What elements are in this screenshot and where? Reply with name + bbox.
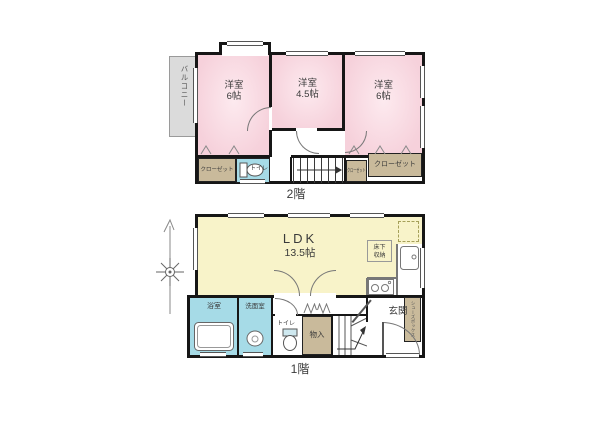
underfloor-storage: 床下収納 (367, 240, 392, 262)
closet-left: クローゼット (198, 158, 236, 182)
entrance-label: 玄関 (376, 306, 420, 317)
balcony: バルコニー (169, 56, 196, 137)
bay-opening (222, 52, 268, 56)
bathtub-icon (194, 322, 234, 351)
closet-label: クローゼット (369, 161, 421, 169)
bifold-door-mark (317, 303, 331, 314)
window (243, 352, 263, 357)
room-name: 洋室 (224, 80, 243, 91)
room-middle-label: 洋室 4.5帖 (272, 78, 343, 101)
window (240, 179, 265, 184)
closet-door-mark (200, 145, 212, 155)
entrance-door-leaf (382, 322, 384, 355)
compass-icon (150, 216, 190, 320)
window (420, 248, 425, 288)
underfloor-storage-label: 床下収納 (373, 245, 387, 261)
washbasin-icon (246, 330, 264, 347)
room-size: 6帖 (376, 91, 391, 102)
toilet-icon (281, 328, 299, 352)
bathroom-label: 浴室 (190, 303, 238, 311)
refrigerator-space (398, 221, 419, 242)
kitchen-sink-icon (400, 246, 420, 270)
window (286, 51, 328, 56)
ldk-size: 13.5帖 (250, 247, 350, 260)
room-right-label: 洋室 6帖 (345, 80, 422, 103)
storage-closet: 物入 (302, 316, 332, 355)
window (227, 41, 263, 46)
room-size: 6帖 (227, 91, 242, 102)
wall (331, 316, 333, 355)
wall (291, 155, 347, 158)
window (350, 213, 384, 218)
toilet-2f-label: トイレ (248, 166, 270, 173)
stairs-arrow (295, 165, 343, 175)
closet-label: クローゼット (199, 167, 235, 174)
window (288, 213, 330, 218)
window (228, 213, 264, 218)
closet-door-mark (400, 145, 412, 155)
window (193, 228, 198, 270)
closet-door-mark (374, 145, 386, 155)
ldk-label: LDK 13.5帖 (250, 231, 350, 259)
window (420, 106, 425, 148)
stairs-1f (333, 316, 367, 355)
closet-right: クローゼット (368, 153, 422, 177)
counter-edge (396, 244, 398, 295)
room-size: 4.5帖 (296, 89, 319, 100)
room-west-left (198, 55, 270, 156)
room-name: 洋室 (374, 80, 393, 91)
balcony-label: バルコニー (179, 65, 190, 108)
window (355, 51, 405, 56)
floor1-title: 1階 (270, 362, 330, 376)
wall (269, 55, 272, 157)
washroom-label: 洗面室 (238, 303, 272, 311)
closet-label: クローゼット (347, 168, 359, 174)
window (200, 352, 226, 357)
wall (290, 157, 292, 184)
stove-icon (368, 279, 394, 295)
closet-small: クローゼット (346, 160, 367, 182)
room-name: 洋室 (298, 78, 317, 89)
floor2-title: 2階 (266, 187, 326, 201)
room-left-label: 洋室 6帖 (198, 80, 270, 103)
bifold-door-mark (303, 303, 317, 314)
ldk-name: LDK (250, 231, 350, 247)
storage-label: 物入 (303, 330, 331, 339)
closet-door-mark (228, 145, 240, 155)
